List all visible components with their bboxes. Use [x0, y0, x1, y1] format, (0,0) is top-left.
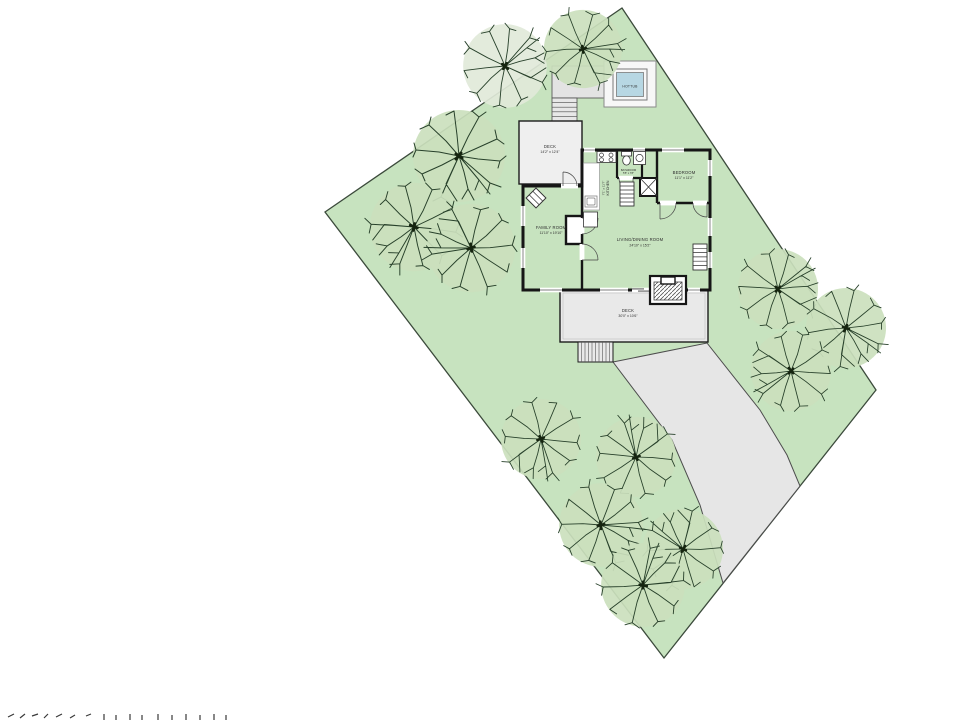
- bathroom-name: BATHROOM: [621, 168, 637, 172]
- bedroom-name: BEDROOM: [673, 170, 696, 175]
- fireplace: [650, 276, 686, 304]
- living-room-name: LIVING/DINING ROOM: [617, 237, 664, 242]
- deck-stairs: [578, 342, 613, 362]
- hottub-label: HOTTUB: [622, 85, 638, 89]
- fridge: [584, 212, 598, 227]
- x-closet: [640, 178, 657, 196]
- upper-deck: DECK 14'2" x 12'4": [519, 121, 582, 184]
- tree: [463, 23, 547, 108]
- hall-stairs: [620, 182, 634, 206]
- walkway-stairs: [552, 98, 577, 121]
- upper-deck-name: DECK: [544, 144, 556, 149]
- toilet-tank: [622, 152, 632, 157]
- lower-deck-dims: 30'0" x 10'6": [618, 314, 638, 318]
- living-stairs: [693, 244, 707, 270]
- clipped-bottom-artifact: [8, 714, 226, 720]
- living-room-dims: 24'10" x 15'2": [629, 244, 651, 248]
- family-room-dims: 11'10" x 19'10": [540, 231, 564, 235]
- toilet-bowl: [623, 156, 631, 165]
- bathroom-dims: 5'5" x 7'8": [623, 172, 634, 175]
- slider-door: [632, 288, 650, 293]
- site-plan-drawing: HOTTUB DECK 14'2" x 12'4" DECK 30'0" x 1…: [0, 0, 960, 720]
- kitchen-name: KITCHEN: [606, 180, 610, 195]
- lower-deck-name: DECK: [622, 308, 634, 313]
- bathroom-fixtures: [622, 152, 646, 166]
- kitchen-dims: 7'1" x 11'7": [602, 181, 606, 196]
- bedroom-dims: 11'1" x 11'2": [675, 176, 694, 180]
- upper-deck-dims: 14'2" x 12'4": [540, 150, 560, 154]
- site-plan-page: HOTTUB DECK 14'2" x 12'4" DECK 30'0" x 1…: [0, 0, 960, 720]
- kitchen-sink: [585, 196, 597, 207]
- family-room-name: FAMILY ROOM: [536, 225, 567, 230]
